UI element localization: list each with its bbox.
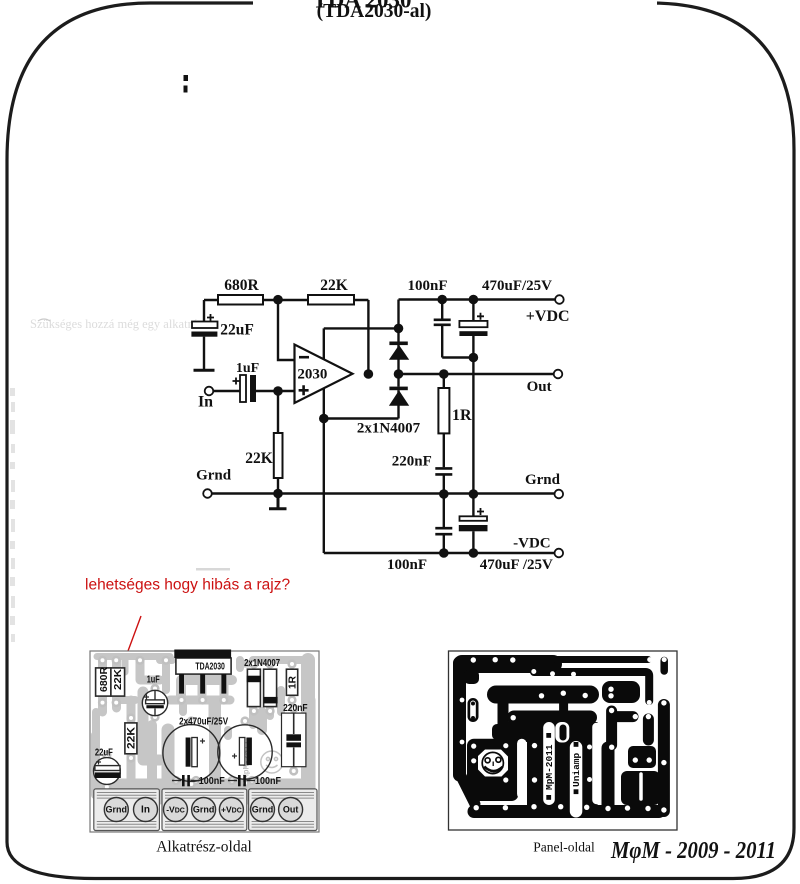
svg-text:1uF: 1uF xyxy=(147,674,160,685)
svg-text:100nF: 100nF xyxy=(407,278,447,294)
svg-text:Uniamp: Uniamp xyxy=(571,752,582,787)
svg-text:470uF/25V: 470uF/25V xyxy=(482,278,552,294)
svg-text:Out: Out xyxy=(527,379,552,395)
svg-text:Out: Out xyxy=(283,805,299,815)
svg-text:Grnd: Grnd xyxy=(525,472,561,488)
svg-text:1R: 1R xyxy=(288,675,299,689)
svg-text:lehetséges hogy hibás a rajz?: lehetséges hogy hibás a rajz? xyxy=(85,577,290,594)
svg-text:Szükséges hozzá még egy alkatr: Szükséges hozzá még egy alkatrész xyxy=(30,317,208,331)
svg-text:TDA2030: TDA2030 xyxy=(195,662,225,673)
svg-text:In: In xyxy=(198,394,213,411)
svg-text:100nF: 100nF xyxy=(387,557,427,573)
svg-text:Grnd: Grnd xyxy=(252,805,274,815)
svg-text:680R: 680R xyxy=(99,666,110,692)
svg-text:2x1N4007: 2x1N4007 xyxy=(244,658,280,669)
svg-text:1R: 1R xyxy=(452,407,472,424)
svg-text:22K: 22K xyxy=(113,668,124,690)
svg-text:22uF: 22uF xyxy=(95,748,113,759)
svg-text:Alkatrész-oldal: Alkatrész-oldal xyxy=(156,839,252,856)
svg-text:100nF: 100nF xyxy=(255,776,281,787)
svg-text:100nF: 100nF xyxy=(199,776,225,787)
svg-text:22K: 22K xyxy=(126,727,138,749)
svg-text:2x1N4007: 2x1N4007 xyxy=(357,421,421,437)
svg-text:1uF: 1uF xyxy=(236,361,259,376)
svg-text:MpM-2011: MpM-2011 xyxy=(544,744,555,790)
svg-text:(TDA2030-al): (TDA2030-al) xyxy=(317,1,432,22)
svg-text:Panel-oldal: Panel-oldal xyxy=(533,840,595,855)
svg-text:Grnd: Grnd xyxy=(196,468,232,484)
svg-text:-VDC: -VDC xyxy=(513,536,551,552)
svg-text:220nF: 220nF xyxy=(283,703,308,714)
svg-text:Grnd: Grnd xyxy=(106,805,128,815)
svg-text:Grnd: Grnd xyxy=(193,805,215,815)
svg-text:470uF /25V: 470uF /25V xyxy=(480,557,553,573)
svg-text:22K: 22K xyxy=(320,277,348,294)
svg-text:+VDC: +VDC xyxy=(526,308,570,325)
svg-text:22K: 22K xyxy=(245,450,273,467)
svg-text:22uF: 22uF xyxy=(220,322,254,339)
svg-text:In: In xyxy=(141,805,150,816)
svg-text:2030: 2030 xyxy=(297,367,327,383)
svg-text:MφM - 2009 - 2011: MφM - 2009 - 2011 xyxy=(610,838,776,864)
svg-text:220nF: 220nF xyxy=(392,454,432,470)
svg-text:680R: 680R xyxy=(224,277,259,294)
svg-text:2x470uF/25V: 2x470uF/25V xyxy=(179,717,228,728)
